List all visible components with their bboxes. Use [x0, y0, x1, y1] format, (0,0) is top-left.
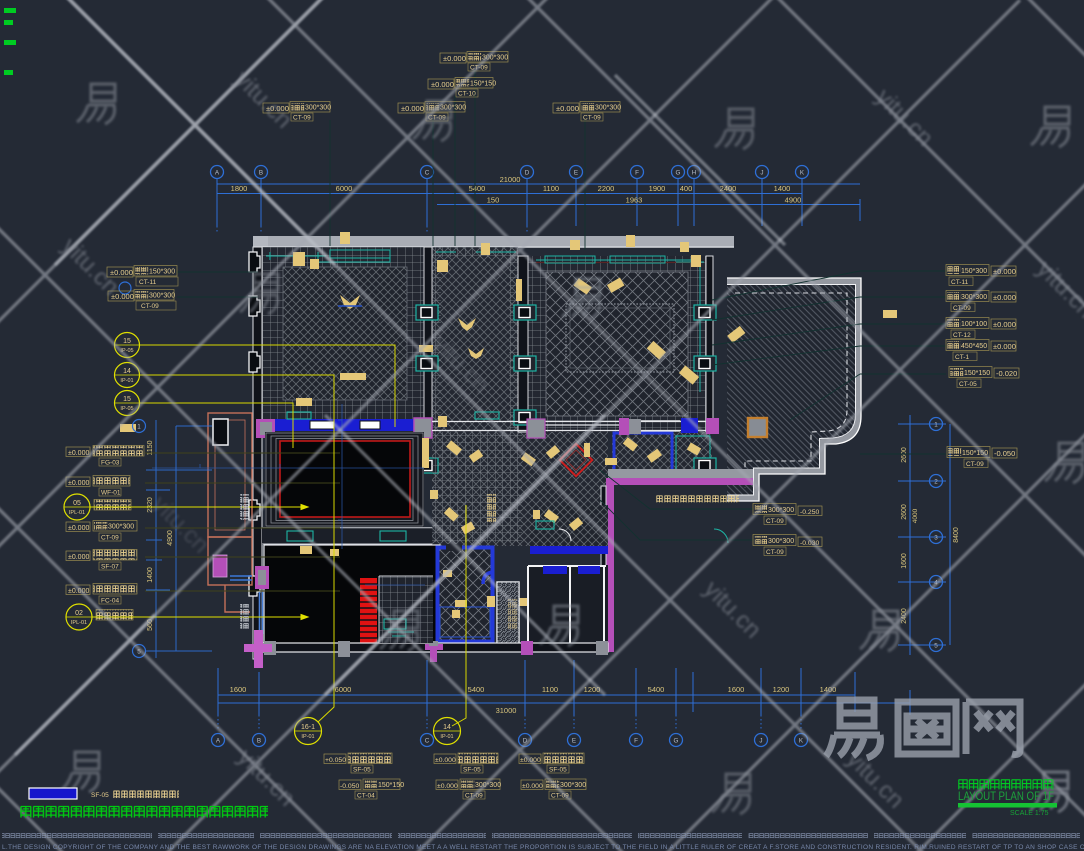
svg-text:CT-09: CT-09	[583, 115, 601, 122]
svg-text:CT-1: CT-1	[955, 354, 969, 361]
svg-text:IP-01: IP-01	[120, 378, 133, 384]
svg-text:±0.000: ±0.000	[993, 293, 1016, 302]
svg-text:±0.000: ±0.000	[68, 450, 89, 457]
svg-text:WF-01: WF-01	[101, 490, 121, 497]
svg-text:1600: 1600	[901, 553, 908, 569]
svg-text:CT-10: CT-10	[458, 91, 476, 98]
svg-text:L.THE DESIGN COPYRIGHT OF THE: L.THE DESIGN COPYRIGHT OF THE COMPANY AN…	[2, 844, 1084, 851]
svg-text:IP-01: IP-01	[440, 734, 453, 740]
svg-text:02: 02	[75, 610, 83, 617]
svg-text:150*150: 150*150	[964, 370, 990, 377]
svg-text:300*300: 300*300	[108, 523, 134, 530]
svg-text:2600: 2600	[901, 447, 908, 463]
svg-text:450*450: 450*450	[961, 343, 987, 350]
svg-text:300*300: 300*300	[595, 104, 621, 111]
svg-text:100*100: 100*100	[961, 321, 987, 328]
svg-text:-0.050: -0.050	[994, 449, 1015, 458]
svg-text:300*300: 300*300	[149, 292, 175, 299]
svg-text:SCALE 1:75: SCALE 1:75	[1010, 810, 1049, 817]
svg-text:IP-01: IP-01	[301, 734, 314, 740]
svg-text:C: C	[425, 738, 430, 745]
svg-text:4900: 4900	[785, 196, 802, 205]
svg-text:150*300: 150*300	[961, 268, 987, 275]
svg-text:21000: 21000	[500, 175, 521, 184]
svg-text:SF-07: SF-07	[101, 564, 119, 571]
svg-text:4000: 4000	[912, 508, 919, 523]
svg-text:1963: 1963	[626, 196, 643, 205]
svg-text:1900: 1900	[649, 184, 666, 193]
svg-text:CT-11: CT-11	[951, 279, 969, 286]
svg-text:SF-05: SF-05	[353, 767, 371, 774]
svg-text:FC-04: FC-04	[101, 598, 119, 605]
svg-text:±0.000: ±0.000	[68, 525, 89, 532]
svg-text:±0.000: ±0.000	[993, 342, 1016, 351]
svg-text:-0.050: -0.050	[340, 783, 359, 790]
svg-text:SF-05: SF-05	[549, 767, 567, 774]
svg-text:16-1: 16-1	[301, 724, 315, 731]
svg-text:5400: 5400	[469, 184, 486, 193]
svg-text:E: E	[574, 170, 578, 177]
svg-text:C: C	[425, 170, 430, 177]
svg-text:150*150: 150*150	[470, 80, 496, 87]
svg-text:±0.000: ±0.000	[111, 292, 134, 301]
svg-text:1600: 1600	[728, 685, 745, 694]
svg-text:B: B	[259, 170, 263, 177]
svg-text:±0.000: ±0.000	[435, 757, 456, 764]
svg-text:±0.000: ±0.000	[437, 783, 458, 790]
svg-text:5: 5	[934, 643, 938, 650]
svg-text:F: F	[634, 738, 638, 745]
svg-text:8400: 8400	[953, 527, 960, 543]
svg-text:CT-05: CT-05	[959, 381, 977, 388]
svg-text:3: 3	[934, 535, 938, 542]
svg-text:150*150: 150*150	[378, 782, 404, 789]
svg-text:±0.000: ±0.000	[443, 54, 466, 63]
svg-text:+0.050: +0.050	[325, 757, 346, 764]
svg-text:1100: 1100	[542, 685, 558, 694]
svg-text:150: 150	[487, 196, 500, 205]
svg-text:SF-05: SF-05	[463, 767, 481, 774]
svg-text:CT-09: CT-09	[101, 535, 119, 542]
svg-text:CT-09: CT-09	[766, 549, 784, 556]
svg-text:2: 2	[934, 479, 938, 486]
svg-text:6000: 6000	[335, 685, 352, 694]
svg-text:CT-09: CT-09	[966, 461, 984, 468]
svg-text:1600: 1600	[230, 685, 247, 694]
svg-text:±0.000: ±0.000	[68, 554, 89, 561]
svg-text:±0.000: ±0.000	[431, 80, 454, 89]
svg-text:CT-09: CT-09	[141, 303, 159, 310]
svg-text:G: G	[674, 738, 679, 745]
svg-text:G: G	[676, 170, 681, 177]
svg-text:CT-09: CT-09	[766, 518, 784, 525]
svg-text:1400: 1400	[147, 567, 154, 583]
svg-text:E: E	[572, 738, 576, 745]
svg-text:2200: 2200	[598, 184, 615, 193]
svg-text:F: F	[635, 170, 639, 177]
svg-text:B: B	[257, 738, 261, 745]
svg-text:14: 14	[443, 724, 451, 731]
svg-text:IPL-01: IPL-01	[71, 620, 87, 626]
svg-text:150*300: 150*300	[149, 268, 175, 275]
svg-text:CT-04: CT-04	[357, 793, 375, 800]
svg-text:5400: 5400	[468, 685, 485, 694]
svg-text:300*300: 300*300	[560, 782, 586, 789]
svg-text:SF-05: SF-05	[91, 792, 109, 799]
svg-text:CT-11: CT-11	[139, 279, 157, 286]
svg-text:H: H	[692, 170, 697, 177]
svg-text:400: 400	[680, 184, 693, 193]
svg-text:D: D	[525, 170, 530, 177]
svg-text:±0.000: ±0.000	[522, 783, 543, 790]
svg-text:-0.020: -0.020	[996, 369, 1017, 378]
svg-text:FG-03: FG-03	[101, 460, 120, 467]
svg-text:IPL-01: IPL-01	[69, 510, 85, 516]
svg-text:6000: 6000	[336, 184, 353, 193]
svg-text:15: 15	[123, 396, 131, 403]
svg-text:5400: 5400	[648, 685, 665, 694]
svg-text:±0.000: ±0.000	[401, 104, 424, 113]
svg-text:J: J	[759, 738, 762, 745]
svg-text:31000: 31000	[496, 706, 517, 715]
svg-text:±0.000: ±0.000	[68, 480, 89, 487]
svg-text:±0.000: ±0.000	[993, 320, 1016, 329]
svg-text:1: 1	[137, 424, 141, 431]
svg-text:300*300: 300*300	[305, 104, 331, 111]
svg-text:±0.000: ±0.000	[556, 104, 579, 113]
svg-text:J: J	[760, 170, 763, 177]
svg-text:CT-12: CT-12	[953, 332, 971, 339]
svg-text:15: 15	[123, 338, 131, 345]
svg-text:14: 14	[123, 368, 131, 375]
svg-text:2600: 2600	[901, 504, 908, 520]
svg-text:1400: 1400	[774, 184, 791, 193]
svg-text:300*300: 300*300	[768, 538, 794, 545]
svg-text:1100: 1100	[543, 184, 559, 193]
svg-text:05: 05	[73, 500, 81, 507]
svg-text:1800: 1800	[231, 184, 248, 193]
svg-text:LAYOUT PLAN OF 1F: LAYOUT PLAN OF 1F	[958, 791, 1054, 803]
svg-text:1200: 1200	[773, 685, 790, 694]
svg-text:1: 1	[934, 422, 938, 429]
svg-text:-0.250: -0.250	[800, 509, 819, 516]
svg-text:IP-05: IP-05	[120, 406, 133, 412]
